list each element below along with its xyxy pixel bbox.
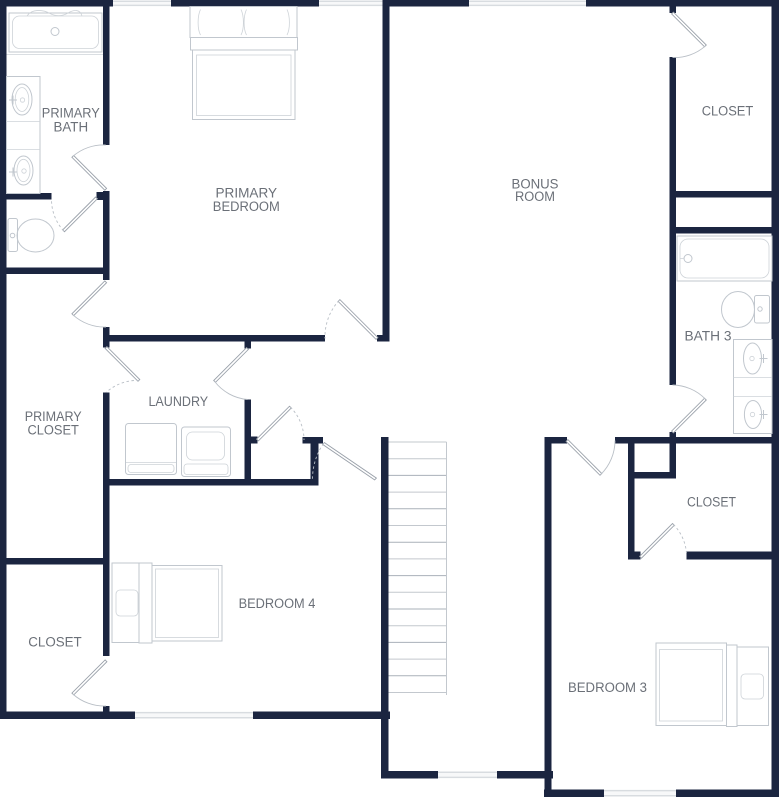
- svg-text:ROOM: ROOM: [515, 189, 555, 204]
- svg-text:BEDROOM: BEDROOM: [213, 199, 280, 214]
- svg-text:BATH 3: BATH 3: [685, 329, 732, 344]
- svg-text:CLOSET: CLOSET: [28, 423, 79, 438]
- svg-text:LAUNDRY: LAUNDRY: [148, 394, 208, 409]
- svg-text:CLOSET: CLOSET: [687, 495, 736, 510]
- svg-text:BEDROOM 4: BEDROOM 4: [239, 596, 316, 611]
- svg-text:BEDROOM 3: BEDROOM 3: [568, 680, 647, 695]
- svg-text:BATH: BATH: [54, 120, 89, 135]
- svg-text:CLOSET: CLOSET: [702, 104, 754, 119]
- svg-text:CLOSET: CLOSET: [28, 635, 81, 650]
- svg-text:PRIMARY: PRIMARY: [42, 106, 100, 121]
